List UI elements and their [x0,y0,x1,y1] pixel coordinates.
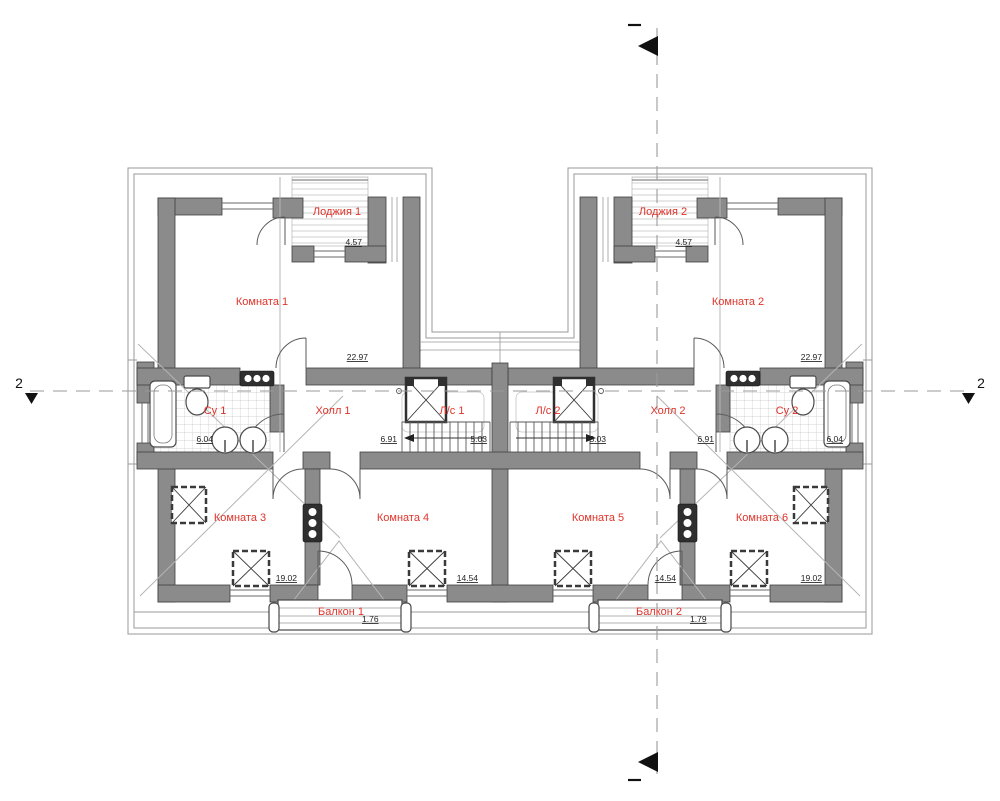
stair1-label: Л/с 1 [440,405,465,417]
floor-plan-canvas: 2 2 Лоджия 1 4.57 Комната 1 22.97 Су 1 6… [0,0,1000,801]
hall2-area: 6.91 [697,434,714,444]
floorplan-page: 2 2 Лоджия 1 4.57 Комната 1 22.97 Су 1 6… [0,0,1000,801]
toilet-2 [790,376,816,388]
su1-label: Су 1 [204,405,227,417]
loggia1-label: Лоджия 1 [313,206,361,218]
section-arrow-left-icon [25,393,38,404]
room4-label: Комната 4 [377,512,429,524]
balcony2-area: 1.79 [690,614,707,624]
section-arrow-right-icon [962,393,975,404]
room1-area: 22.97 [347,352,369,362]
toilet-1 [184,376,210,388]
balcony2-label: Балкон 2 [636,606,682,618]
loggia1-area: 4.57 [345,237,362,247]
su2-area: 6.04 [826,434,843,444]
room3-area: 19.02 [276,573,298,583]
loggia2-label: Лоджия 2 [639,206,687,218]
su1-area: 6.04 [196,434,213,444]
section-marker-right-label: 2 [977,375,985,391]
hall1-label: Холл 1 [315,405,350,417]
stair2-area: 5.03 [589,434,606,444]
section-arrow-top-icon [638,36,658,56]
room4-area: 14.54 [457,573,479,583]
room6-area: 19.02 [801,573,823,583]
balcony1-area: 1.76 [362,614,379,624]
section-marker-left-label: 2 [15,375,23,391]
loggia2-area: 4.57 [675,237,692,247]
party-wall [492,363,508,602]
su2-label: Су 2 [776,405,799,417]
room2-label: Комната 2 [712,296,764,308]
stair2-label: Л/с 2 [536,405,561,417]
room5-area: 14.54 [655,573,677,583]
room1-label: Комната 1 [236,296,288,308]
hall1-area: 6.91 [380,434,397,444]
hall2-label: Холл 2 [650,405,685,417]
room2-area: 22.97 [801,352,823,362]
section-arrow-bottom-icon [638,752,658,772]
room3-label: Комната 3 [214,512,266,524]
room5-label: Комната 5 [572,512,624,524]
room6-label: Комната 6 [736,512,788,524]
stair1-area: 5.03 [470,434,487,444]
balcony1-label: Балкон 1 [318,606,364,618]
